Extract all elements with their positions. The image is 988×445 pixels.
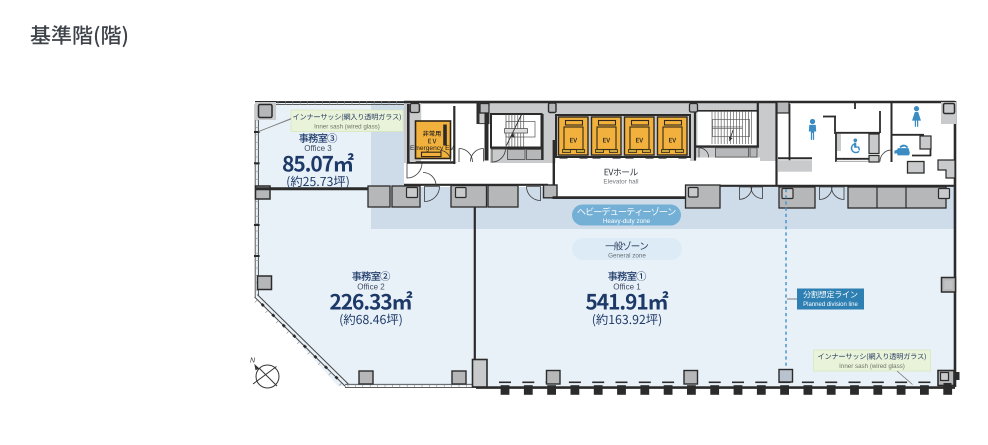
svg-text:Planned division line: Planned division line <box>803 302 858 308</box>
svg-text:Office 3: Office 3 <box>304 144 332 153</box>
svg-text:Inner sash (wired glass): Inner sash (wired glass) <box>314 123 380 130</box>
svg-text:General zone: General zone <box>608 253 646 260</box>
svg-text:Emergency EV: Emergency EV <box>410 145 455 152</box>
svg-text:Office 1: Office 1 <box>613 283 641 292</box>
svg-text:Inner sash (wired glass): Inner sash (wired glass) <box>839 363 905 370</box>
svg-text:Heavy-duty zone: Heavy-duty zone <box>603 218 651 225</box>
svg-text:Office 2: Office 2 <box>357 283 385 292</box>
svg-text:Elevator hall: Elevator hall <box>603 179 638 186</box>
